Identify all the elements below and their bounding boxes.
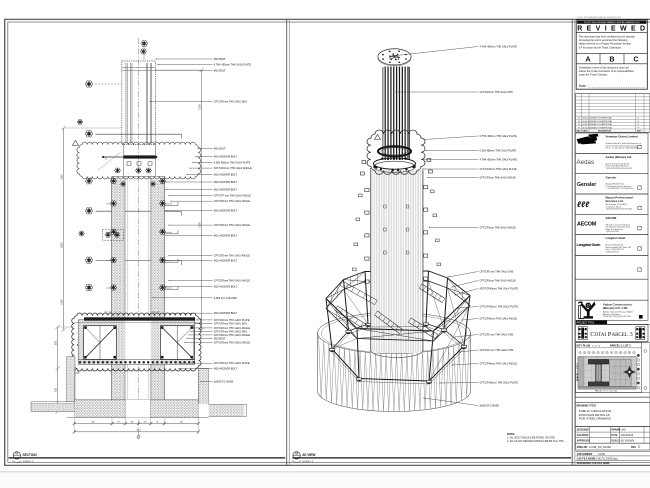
svg-text:DATE: DATE	[583, 129, 589, 132]
svg-text:ø 500 R.C COLUMN: ø 500 R.C COLUMN	[214, 297, 237, 300]
svg-text:PARCEL 1, LOT 2: PARCEL 1, LOT 2	[610, 345, 631, 348]
svg-text:CHECKED: CHECKED	[577, 435, 589, 437]
svg-text:REFERENCE CAD FILE NAME: REFERENCE CAD FILE NAME	[577, 462, 610, 465]
svg-text:(Macau) CO. LTD.: (Macau) CO. LTD.	[603, 306, 629, 310]
svg-text:CFT/CF0mm THK GALV ANGLE: CFT/CF0mm THK GALV ANGLE	[214, 255, 251, 258]
svg-text:R E V I E W E D: R E V I E W E D	[577, 26, 646, 33]
svg-text:M10 BOLT: M10 BOLT	[214, 337, 226, 340]
svg-text:T (852) 3922 9000: T (852) 3922 9000	[606, 231, 619, 233]
svg-text:M10 ANCHOR BOLT: M10 ANCHOR BOLT	[214, 210, 238, 213]
svg-text:14/12/2015: 14/12/2015	[621, 434, 634, 437]
svg-text:under the Trade Contract.: under the Trade Contract.	[579, 73, 608, 77]
svg-text:3D VIEW: 3D VIEW	[302, 453, 315, 457]
svg-text:CAD FILE NAME: CAD FILE NAME	[577, 457, 595, 460]
svg-text:Langdon Seah: Langdon Seah	[606, 236, 626, 240]
svg-text:CFT/CF0mm THK GALV ANGLE: CFT/CF0mm THK GALV ANGLE	[480, 177, 517, 180]
svg-text:CFT/CF40mm THK GALV ANGLE: CFT/CF40mm THK GALV ANGLE	[480, 363, 518, 366]
svg-text:Aedas: Aedas	[577, 159, 595, 166]
svg-text:7500: 7500	[197, 222, 201, 228]
svg-text:1/1UB_FD_5V200: 1/1UB_FD_5V200	[589, 445, 611, 449]
svg-text:DESCRIPTION: DESCRIPTION	[598, 130, 612, 132]
svg-text:DESIGNED: DESIGNED	[577, 430, 589, 432]
svg-text:M10 ANCHOR BOLT: M10 ANCHOR BOLT	[214, 286, 238, 289]
svg-text:-: -	[598, 434, 599, 437]
svg-text:Macau T (853) 2833 1710: Macau T (853) 2833 1710	[606, 249, 625, 251]
svg-text:ISSUED FOR APPROVAL: ISSUED FOR APPROVAL	[590, 126, 612, 129]
svg-text:2. ALL FILLET WELDED SHOULD BE: 2. ALL FILLET WELDED SHOULD BE 5B 3mm TH…	[507, 440, 565, 443]
svg-text:M10 ANCHOR BOLT: M10 ANCHOR BOLT	[214, 189, 238, 192]
svg-text:M10 ANCHOR BOLT: M10 ANCHOR BOLT	[214, 235, 238, 238]
svg-text:00.00.15: 00.00.15	[582, 118, 589, 120]
svg-text:F (853) 2833 1532: F (853) 2833 1532	[606, 251, 619, 253]
svg-text:6 500 450mm THK GALV PLATE: 6 500 450mm THK GALV PLATE	[480, 150, 517, 153]
svg-text:Services Ltd.: Services Ltd.	[606, 199, 624, 203]
svg-text:B: B	[609, 55, 614, 64]
svg-text:Offices - L2, Taipa, Macau T: Offices - L2, Taipa, Macau T (853) 2882 …	[606, 148, 638, 150]
svg-text:SCALE: SCALE	[611, 440, 619, 443]
svg-text:SECTION: SECTION	[23, 453, 38, 457]
svg-text:APPROVED: APPROVED	[577, 440, 590, 443]
svg-text:1/1UB_FD_2005S.dwg: 1/1UB_FD_2005S.dwg	[594, 458, 618, 460]
svg-text:ℓℓℓ: ℓℓℓ	[577, 200, 590, 209]
svg-text:M10 ANCHOR BOLT: M10 ANCHOR BOLT	[214, 312, 238, 315]
svg-text:800: 800	[54, 340, 57, 345]
svg-text:T (853) 2878 6625 F (853) 287: T (853) 2878 6625 F (853) 2878 6621	[606, 209, 633, 211]
svg-text:FOR STEEL DRAWING: FOR STEEL DRAWING	[579, 416, 612, 420]
svg-text:CFT/CF0mm THK GALV SHS: CFT/CF0mm THK GALV SHS	[214, 322, 247, 325]
svg-text:7500: 7500	[197, 104, 201, 110]
svg-text:Consultant review of this: Consultant review of this document does …	[579, 66, 629, 70]
svg-text:CFT/CF0mm THK GALV SHS: CFT/CF0mm THK GALV SHS	[480, 91, 513, 94]
svg-text:Aedas (Macau) Ltd.: Aedas (Macau) Ltd.	[606, 155, 633, 159]
svg-text:Venetian Orient Limited: Venetian Orient Limited	[606, 135, 639, 139]
svg-text:CFT/CF0 mm THK GALV SHS: CFT/CF0 mm THK GALV SHS	[480, 271, 514, 274]
svg-text:LM MY R/W DRAWING WMT AL 2NDWD: LM MY R/W DRAWING WMT AL 2NDWDM D US	[577, 16, 622, 19]
svg-text:DRAWN: DRAWN	[611, 429, 620, 432]
svg-text:CFT/CF0 mm THK GALV SHS: CFT/CF0 mm THK GALV SHS	[480, 349, 514, 352]
svg-text:CFT/CF01mm THK GALV ANGLE: CFT/CF01mm THK GALV ANGLE	[214, 167, 252, 170]
svg-text:DRAWING TITLE: DRAWING TITLE	[577, 405, 597, 408]
svg-text:CFT/CF40mm THK GALV ANGLE: CFT/CF40mm THK GALV ANGLE	[480, 318, 518, 321]
svg-text:Gensler: Gensler	[606, 175, 618, 179]
svg-text:C: C	[633, 55, 638, 64]
svg-text:ISSUED FOR APPROVAL: ISSUED FOR APPROVAL	[590, 120, 612, 123]
svg-text:3-1UB: 3-1UB	[598, 453, 605, 456]
svg-text:CFT/CF0mm THK GALV PLATE: CFT/CF0mm THK GALV PLATE	[214, 362, 250, 365]
svg-text:6 500 450mm THK GALV PLATE: 6 500 450mm THK GALV PLATE	[214, 162, 251, 165]
svg-text:P1: P1	[578, 127, 580, 129]
svg-text:CFT/CFT mm THK GALV ANGLE: CFT/CFT mm THK GALV ANGLE	[214, 195, 251, 198]
svg-text:CFT/CF0mm THK GALV ANGLE: CFT/CF0mm THK GALV ANGLE	[214, 200, 251, 203]
svg-text:CFT/CF410mm THK GALV PLATE: CFT/CF410mm THK GALV PLATE	[480, 306, 519, 309]
svg-text:SCALE 1:5: SCALE 1:5	[23, 460, 35, 463]
svg-text:CFT/CF0mm THK GALV ANGLE: CFT/CF0mm THK GALV ANGLE	[214, 341, 251, 344]
svg-text:T (853) 2833 1133 F (853) 283: T (853) 2833 1133 F (853) 2833 1552	[606, 168, 633, 170]
svg-text:PARCEL 1 LOT 1 S=1:200: PARCEL 1 LOT 1 S=1:200	[595, 390, 617, 393]
svg-text:CFT/CF0mm THK GALV ANGLE: CFT/CF0mm THK GALV ANGLE	[214, 224, 251, 227]
svg-text:M10 ANCHOR BOLT: M10 ANCHOR BOLT	[214, 156, 238, 159]
svg-text:DO NOT SIGN ORIGINAL DRAWING.: DO NOT SIGN ORIGINAL DRAWING. SENT AS DR…	[584, 21, 640, 24]
svg-text:AS SHOWN: AS SHOWN	[621, 440, 635, 443]
svg-text:Consultant(s) and is accord: Consultant(s) and is accorded the follow…	[579, 38, 628, 42]
svg-text:6 THK 450mm THK GALV PLATE: 6 THK 450mm THK GALV PLATE	[214, 64, 252, 67]
svg-text:P2: P2	[578, 124, 580, 126]
svg-text:M10 ANCHOR BOLT: M10 ANCHOR BOLT	[214, 260, 238, 263]
svg-text:This document has been reviewe: This document has been reviewed by the r…	[579, 35, 635, 39]
svg-text:CFT/CF0 mm THK GALV SHS: CFT/CF0 mm THK GALV SHS	[480, 334, 514, 337]
svg-text:6 THK 450mm THK GALV PLATE: 6 THK 450mm THK GALV PLATE	[480, 135, 518, 138]
svg-text:ISSUED FOR APPROVAL: ISSUED FOR APPROVAL	[590, 123, 612, 126]
svg-text:2300: 2300	[60, 242, 63, 248]
svg-text:AECOM: AECOM	[606, 216, 617, 220]
svg-text:S 1:17.50: S 1:17.50	[592, 345, 600, 347]
svg-text:A: A	[585, 55, 590, 64]
svg-text:AECOM: AECOM	[577, 221, 597, 227]
svg-text:ISSUED FOR APPROVAL: ISSUED FOR APPROVAL	[590, 117, 612, 120]
svg-text:CFT/CF40mm THK GALV PLATE: CFT/CF40mm THK GALV PLATE	[480, 168, 517, 171]
svg-text:4 THK 450mm THK GALV PLATE: 4 THK 450mm THK GALV PLATE	[480, 159, 518, 162]
svg-text:CFT/CF410mm THK GALV PLATE: CFT/CF410mm THK GALV PLATE	[480, 382, 519, 385]
svg-text:status referred to in Proje: status referred to in Project Procedure …	[579, 42, 632, 46]
svg-text:4CFT/CF40mm THK GALV PLATE: 4CFT/CF40mm THK GALV PLATE	[480, 288, 519, 291]
svg-text:-: -	[598, 440, 599, 443]
svg-text:5.4 for action by the Tra: 5.4 for action by the Trade Contractor.	[579, 45, 622, 49]
svg-text:LHO: LHO	[621, 429, 626, 432]
svg-text:Langdon·Seah: Langdon·Seah	[577, 242, 601, 247]
svg-text:M10 ANCHOR BOLT: M10 ANCHOR BOLT	[214, 174, 238, 177]
svg-text:M10 ANCHOR BOLT: M10 ANCHOR BOLT	[214, 181, 238, 184]
svg-text:DWG NO: DWG NO	[577, 446, 588, 449]
svg-text:CFT/CF0mm THK GALV SHS: CFT/CF0mm THK GALV SHS	[214, 101, 247, 104]
svg-text:PARCEL 1, LOT 1: PARCEL 1, LOT 1	[576, 362, 579, 381]
svg-text:M10 ANCHOR BOLT: M10 ANCHOR BOLT	[214, 368, 238, 371]
svg-text:SCALE 1:5: SCALE 1:5	[302, 460, 314, 463]
svg-text:DATE: DATE	[611, 434, 618, 437]
svg-text:1. ALL BOLT SHOULD BE FIXING O: 1. ALL BOLT SHOULD BE FIXING ON SITE.	[507, 437, 556, 440]
svg-text:4 THK 450mm THK GALV PLATE: 4 THK 450mm THK GALV PLATE	[480, 46, 518, 49]
svg-text:T (853) 2872 2283 F (853) 28: T (853) 2872 2283 F (853) 2872 2289	[603, 316, 631, 318]
svg-text:M10 BOLT: M10 BOLT	[214, 58, 226, 61]
svg-text:CFT/CF0mm THK GALV ANGLE: CFT/CF0mm THK GALV ANGLE	[480, 280, 517, 283]
svg-text:JOB NUMBER: JOB NUMBER	[577, 454, 593, 456]
svg-text:00.00.15: 00.00.15	[582, 124, 589, 126]
svg-text:COTAI PARCEL 3: COTAI PARCEL 3	[590, 331, 633, 338]
svg-text:REV: REV	[631, 446, 636, 449]
svg-text:Date :: Date :	[579, 84, 588, 88]
svg-text:P3: P3	[578, 121, 580, 123]
svg-text:00.00.15: 00.00.15	[582, 127, 589, 129]
svg-text:KEY PLAN: KEY PLAN	[577, 344, 591, 348]
svg-text:00.00.15: 00.00.15	[582, 121, 589, 123]
svg-text:relieve the Trade Contractor: relieve the Trade Contractor of its resp…	[579, 69, 635, 73]
svg-text:M10 BOLT: M10 BOLT	[214, 69, 226, 72]
svg-text:Gensler: Gensler	[577, 182, 596, 188]
svg-text:China Law Building 21/F, Macau: China Law Building 21/F, Macau	[606, 166, 629, 168]
svg-text:T +81 3 6406 6301 F +81 3 640: T +81 3 6406 6301 F +81 3 6406 6302	[606, 188, 634, 190]
svg-text:P4: P4	[578, 118, 580, 120]
svg-text:NOTE:: NOTE:	[507, 432, 515, 436]
svg-text:750: 750	[54, 387, 57, 392]
svg-text:1500: 1500	[60, 174, 63, 180]
svg-text:ø2000 R.C BASE: ø2000 R.C BASE	[214, 381, 234, 384]
svg-text:M10 BOLT: M10 BOLT	[214, 148, 226, 151]
svg-text:ø2000 R.C BASE: ø2000 R.C BASE	[480, 405, 500, 408]
svg-text:CFT/CF0mm THK GALV ANGLE: CFT/CF0mm THK GALV ANGLE	[480, 227, 517, 230]
svg-text:1200: 1200	[60, 299, 63, 305]
svg-text:CFT/CF0mm THK GALV ANGLE: CFT/CF0mm THK GALV ANGLE	[214, 280, 251, 283]
